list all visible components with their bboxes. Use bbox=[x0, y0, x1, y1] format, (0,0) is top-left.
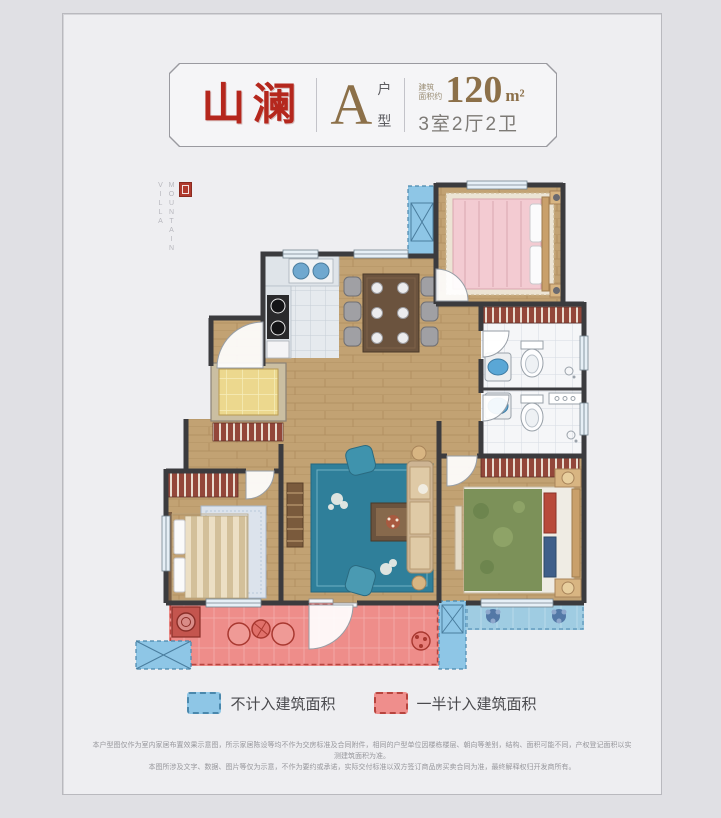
title-frame-inner: 山澜 A 户 型 建筑 面积约 120 bbox=[170, 64, 556, 146]
page-background: 山澜 A 户 型 建筑 面积约 120 bbox=[0, 0, 721, 818]
bedroom-master bbox=[455, 469, 581, 597]
bedroom-left bbox=[167, 506, 266, 602]
unit-type-block: A 户 型 bbox=[330, 79, 391, 131]
divider bbox=[404, 78, 405, 132]
entry-mat bbox=[211, 363, 286, 421]
disclaimer: 本户型图仅作为室内家居布置效果示意图，所示家居陈设等均不作为交房标准及合同附件，… bbox=[91, 740, 633, 773]
bedroom-top-right bbox=[446, 191, 563, 297]
unit-type-chars: 户 型 bbox=[377, 79, 391, 131]
ac-platform-bottom-left bbox=[136, 641, 191, 669]
area-unit: m² bbox=[505, 86, 524, 107]
legend-label: 一半计入建筑面积 bbox=[417, 693, 537, 714]
area-value: 120 bbox=[445, 74, 502, 106]
layout-spec: 3室2厅2卫 bbox=[418, 109, 524, 136]
unit-type-char-top: 户 bbox=[377, 79, 391, 99]
legend-swatch-blue bbox=[187, 692, 221, 714]
area-prefix: 建筑 面积约 bbox=[418, 83, 442, 106]
area-block: 建筑 面积约 120 m² 3室2厅2卫 bbox=[418, 74, 524, 135]
unit-type-char-bottom: 型 bbox=[377, 111, 391, 131]
divider bbox=[316, 78, 317, 132]
balcony-top-ac bbox=[408, 186, 436, 256]
project-name: 山澜 bbox=[201, 83, 303, 127]
legend: 不计入建筑面积 一半计入建筑面积 bbox=[63, 692, 661, 714]
balcony-red-half-area bbox=[169, 603, 439, 666]
legend-label: 不计入建筑面积 bbox=[230, 693, 335, 714]
legend-item-half: 一半计入建筑面积 bbox=[374, 692, 537, 714]
area-row: 建筑 面积约 120 m² bbox=[418, 74, 524, 106]
dining-table bbox=[344, 274, 438, 352]
disclaimer-line-2: 本图所涉及文字、数据、图片等仅为示意，不作为要约或承诺，实际交付标准以双方签订商… bbox=[91, 762, 633, 773]
brochure-card: 山澜 A 户 型 建筑 面积约 120 bbox=[62, 13, 662, 795]
ac-shaft-middle bbox=[439, 601, 466, 669]
floor-plan bbox=[131, 171, 601, 671]
title-frame: 山澜 A 户 型 建筑 面积约 120 bbox=[169, 63, 557, 147]
unit-letter: A bbox=[330, 79, 372, 131]
legend-swatch-red bbox=[374, 692, 408, 714]
disclaimer-line-1: 本户型图仅作为室内家居布置效果示意图，所示家居陈设等均不作为交房标准及合同附件，… bbox=[91, 740, 633, 762]
legend-item-excluded: 不计入建筑面积 bbox=[187, 692, 335, 714]
area-prefix-bottom: 面积约 bbox=[418, 92, 442, 101]
